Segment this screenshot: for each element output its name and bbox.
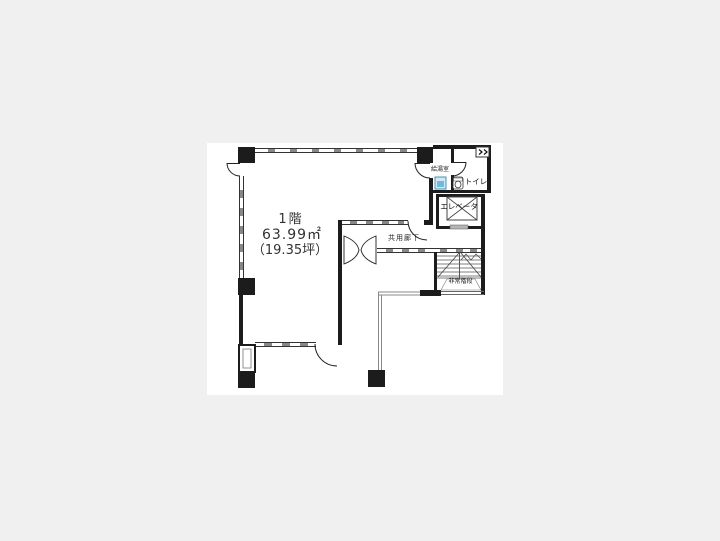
wall-service-right-lower — [481, 229, 485, 295]
area-tsubo-label: （19.35坪） — [230, 244, 350, 258]
wall-mainroom-east — [429, 178, 433, 222]
wall-left-lower — [239, 295, 243, 345]
floor-plan-image: 1階 63.99㎡ （19.35坪） 給湯室 トイレ エレベータ 共用廊下 非常… — [0, 0, 720, 541]
column-south-mid — [368, 370, 385, 387]
elevator-label: エレベータ — [433, 203, 485, 211]
column-northwest — [238, 147, 255, 163]
toilet-icon — [453, 177, 463, 189]
toilet-label: トイレ — [463, 178, 489, 186]
column-west-mid — [238, 278, 255, 295]
wall-stairs-bottom-heavy — [420, 290, 441, 296]
wall-kitchenette-toilet-a — [451, 148, 454, 163]
column-north-mid — [417, 147, 433, 163]
window-wall-bottom-ticks — [264, 343, 308, 346]
area-sqm-label: 63.99㎡ — [242, 228, 342, 243]
sink-icon — [435, 177, 446, 189]
corridor-label: 共用廊下 — [383, 235, 425, 243]
column-southwest — [238, 372, 255, 388]
floor-plan-drawing — [0, 0, 720, 541]
wall-elevator-right — [481, 194, 485, 229]
wall-stairs-left — [434, 252, 437, 292]
wall-elevator-left — [436, 194, 439, 229]
elevator-door-sill — [450, 225, 468, 229]
wall-elevator-bottom-b — [468, 226, 485, 229]
ventilation-window-icon — [476, 147, 489, 157]
window-bay-southwest — [239, 345, 255, 372]
wall-service-mid — [430, 190, 490, 193]
wall-elevator-bottom-a — [436, 226, 450, 229]
emergency-stairs-label: 非常階段 — [443, 279, 478, 286]
floor-label: 1階 — [261, 213, 321, 227]
kitchenette-label: 給湯室 — [427, 167, 453, 174]
